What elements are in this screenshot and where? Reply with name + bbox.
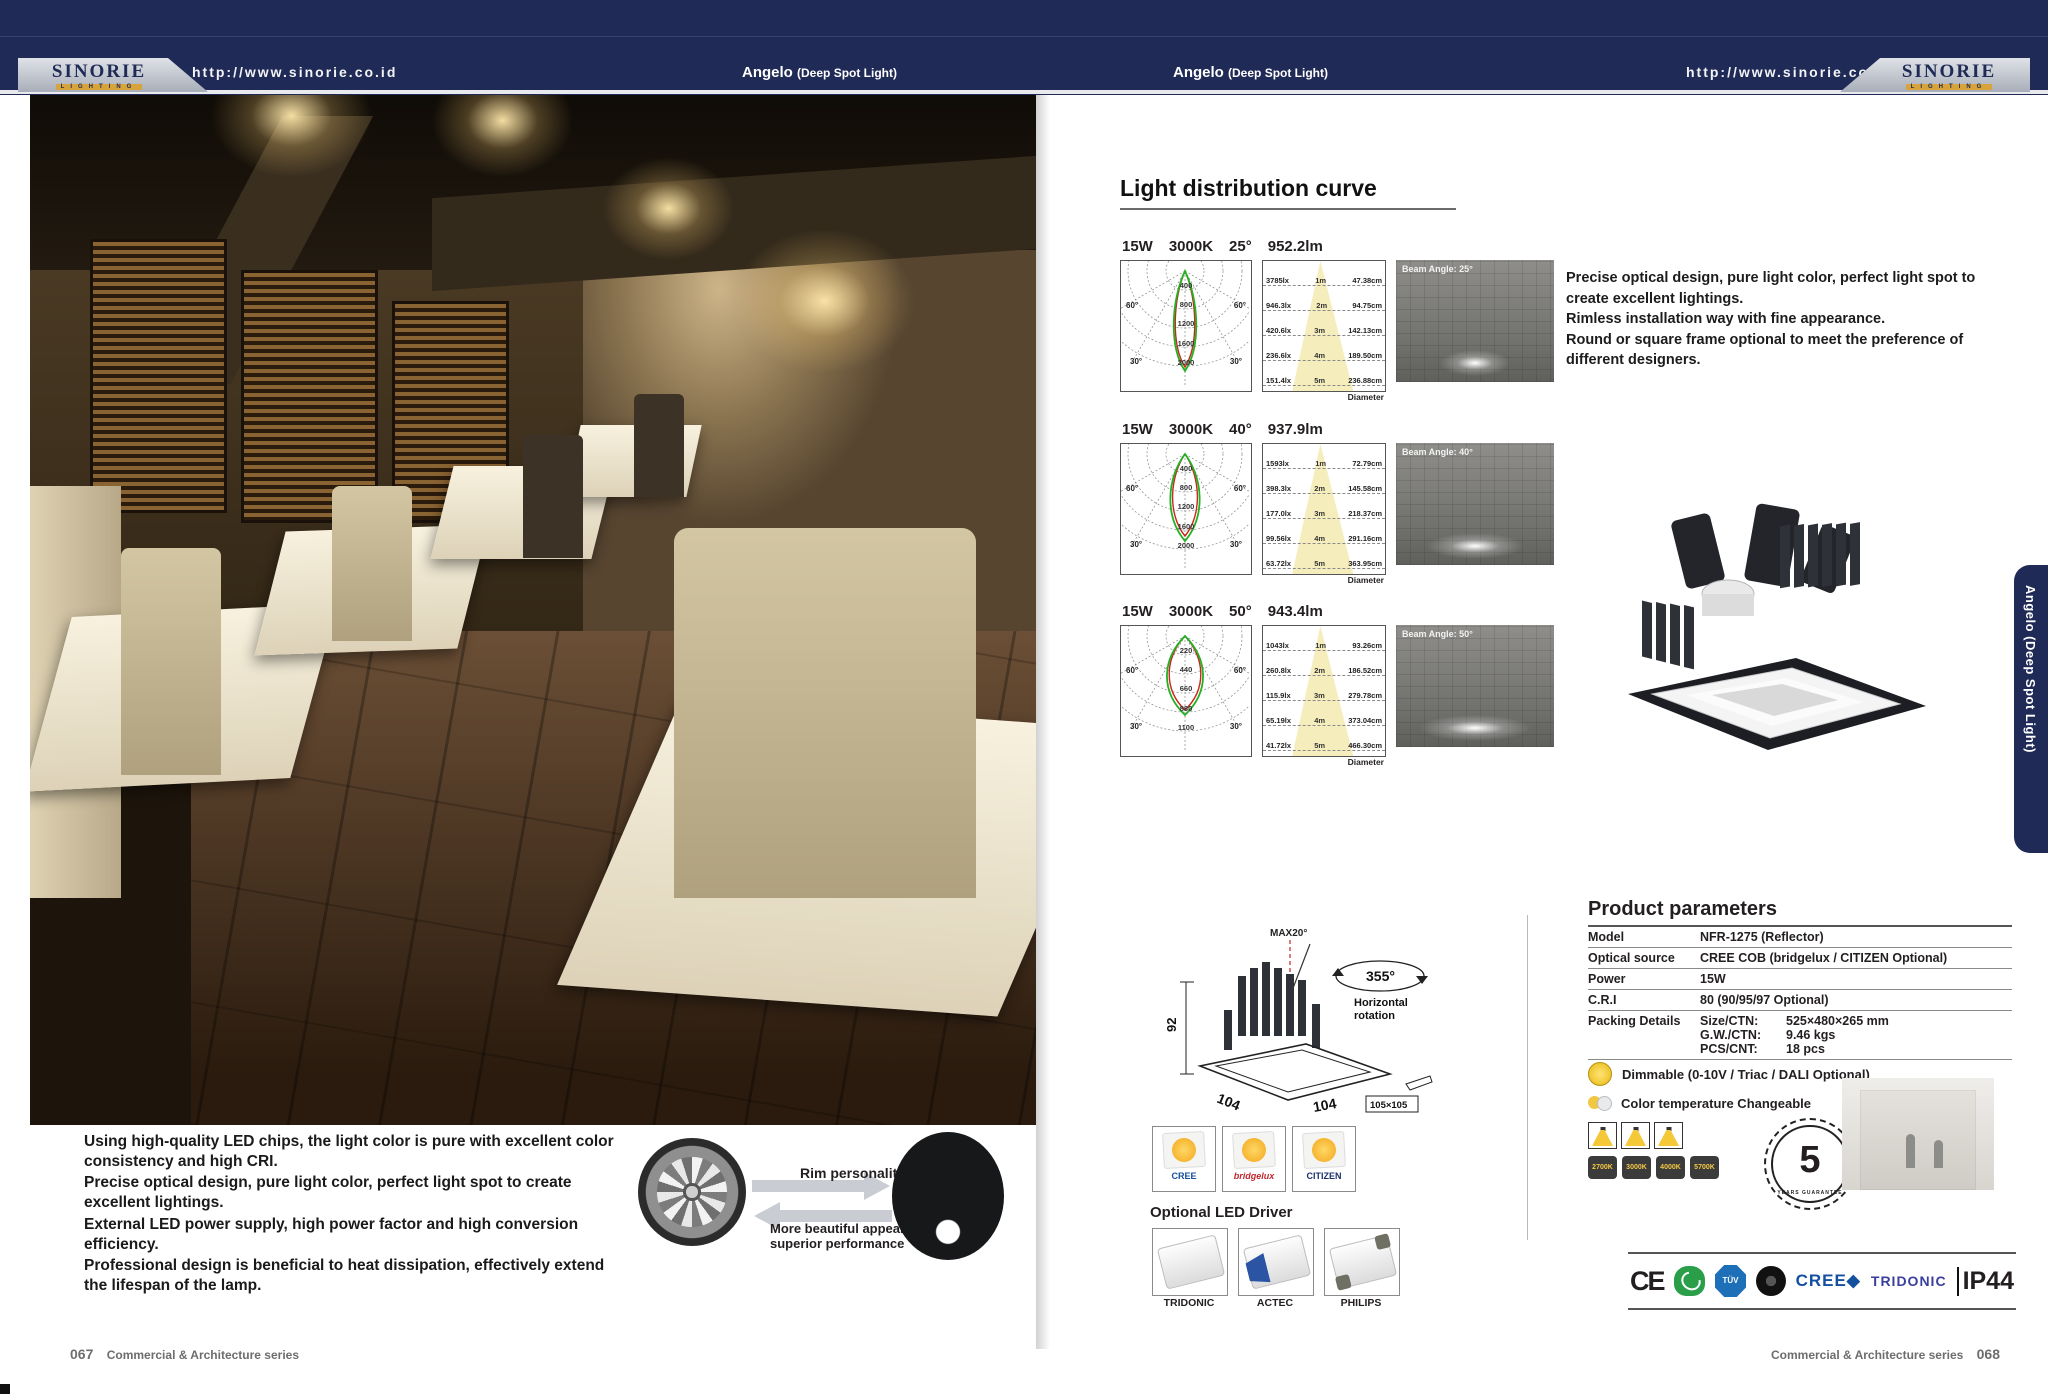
ip44-rating: IP44 <box>1957 1267 2014 1296</box>
polar-chart: 400800120016002000 60° 60° 30° 30° <box>1120 443 1252 575</box>
product-intro: Precise optical design, pure light color… <box>1566 268 1978 371</box>
heatsink-rim-image <box>892 1132 1004 1260</box>
ring-labels: 400800120016002000 <box>1178 464 1195 560</box>
warranty-years: 5 <box>1773 1127 1847 1193</box>
driver-card-philips <box>1324 1228 1400 1296</box>
page-gutter <box>1036 95 1050 1349</box>
photo-armchair-front <box>674 528 976 899</box>
header-bottom-rule <box>0 90 2048 94</box>
brand-name: SINORIE <box>52 61 146 82</box>
site-url-left: http://www.sinorie.co.id <box>192 64 397 80</box>
photo-chair <box>332 486 412 641</box>
side-tab-label: Angelo (Deep Spot Light) <box>2023 585 2038 753</box>
beam-floor-glow <box>1427 533 1523 559</box>
driver-card-actec <box>1238 1228 1314 1296</box>
svg-text:92: 92 <box>1164 1018 1179 1032</box>
cct-chip: 4000K <box>1656 1156 1685 1179</box>
description-line: Precise optical design, pure light color… <box>84 1173 624 1213</box>
svg-text:rotation: rotation <box>1354 1010 1395 1022</box>
header-divider <box>0 36 2048 37</box>
distribution-row-50: 15W3000K50°943.4lm 2204406608801100 60° … <box>1120 603 1580 771</box>
wheel-image <box>638 1138 746 1246</box>
print-mark <box>0 1384 10 1394</box>
cone-table-row: 260.8lx2m186.52cm <box>1263 651 1385 676</box>
tuv-icon: TÜV <box>1715 1265 1746 1297</box>
curves-heading-rule <box>1120 208 1456 210</box>
polar-chart: 2204406608801100 60° 60° 30° 30° <box>1120 625 1252 757</box>
rohs-icon <box>1674 1266 1705 1296</box>
photo-chair-dark <box>523 435 583 559</box>
cone-diagram: 1043lx1m93.26cm260.8lx2m186.52cm115.9lx3… <box>1262 625 1386 757</box>
side-tab-angelo: Angelo (Deep Spot Light) <box>2014 565 2048 853</box>
dimmable-icon <box>1588 1062 1612 1086</box>
restaurant-photo <box>30 95 1036 1125</box>
warranty-stamp-inner: 5 YEARS GUARANTEE <box>1771 1125 1849 1203</box>
footer-right: Commercial & Architecture series 068 <box>1771 1346 2010 1362</box>
cct-changeable-row: Color temperature Changeable <box>1588 1094 1811 1112</box>
cone-table-row: 41.72lx5m466.30cm <box>1263 726 1385 751</box>
svg-text:105×105: 105×105 <box>1370 1100 1408 1111</box>
certifications-row: CE TÜV CREE◆ TRIDONIC IP44 <box>1628 1252 2016 1310</box>
cone-table-row: 63.72lx5m363.95cm <box>1263 544 1385 569</box>
brand-logo-right: SINORIE LIGHTING <box>1874 61 2024 90</box>
photo-blinds <box>241 270 378 523</box>
cone-table-row: 420.6lx3m142.13cm <box>1263 311 1385 336</box>
product-description: Using high-quality LED chips, the light … <box>84 1132 624 1297</box>
cct-chip: 2700K <box>1588 1156 1617 1179</box>
cone-table-row: 115.9lx3m279.78cm <box>1263 676 1385 701</box>
cb-emblem-icon <box>1756 1266 1785 1296</box>
figure-silhouette <box>1934 1140 1943 1168</box>
curves-heading: Light distribution curve <box>1120 175 1377 202</box>
cone-diagram: 1593lx1m72.79cm398.3lx2m145.58cm177.0lx3… <box>1262 443 1386 575</box>
downlight-glow <box>603 157 734 260</box>
led-chip-card-bridgelux: bridgelux <box>1222 1126 1286 1192</box>
packing-line: PCS/CNT: 18 pcs <box>1700 1042 2012 1056</box>
warranty-text: YEARS GUARANTEE <box>1773 1190 1847 1196</box>
beam-angle-icon <box>1621 1122 1650 1149</box>
fixture-image <box>1600 498 1940 778</box>
cone-table-row: 3785lx1m47.38cm <box>1263 261 1385 286</box>
photo-chair-dark <box>634 394 684 497</box>
page-number-right: 068 <box>1977 1346 2000 1362</box>
driver-name: PHILIPS <box>1324 1297 1398 1309</box>
distribution-label: 15W3000K50°943.4lm <box>1122 603 1339 620</box>
packing-line: G.W./CTN: 9.46 kgs <box>1700 1028 2012 1042</box>
cone-table-row: 177.0lx3m218.37cm <box>1263 494 1385 519</box>
brand-subtitle: LIGHTING <box>56 84 142 90</box>
cob-chip-image <box>1302 1131 1346 1169</box>
description-line: Professional design is beneficial to hea… <box>84 1256 624 1296</box>
parameter-row: C.R.I 80 (90/95/97 Optional) <box>1588 990 2012 1011</box>
photo-chair <box>121 548 222 775</box>
ce-mark-icon: CE <box>1630 1266 1664 1297</box>
driver-image <box>1157 1234 1225 1289</box>
beam-floor-glow <box>1440 350 1510 376</box>
cone-table-row: 99.56lx4m291.16cm <box>1263 519 1385 544</box>
ring-labels: 2204406608801100 <box>1178 646 1194 742</box>
figure-silhouette <box>1906 1134 1915 1168</box>
cone-table-row: 236.6lx4m189.50cm <box>1263 336 1385 361</box>
led-chip-card-citizen: CITIZEN <box>1292 1126 1356 1192</box>
brand-logo-left: SINORIE LIGHTING <box>24 61 174 90</box>
intro-line: Round or square frame optional to meet t… <box>1566 330 1978 371</box>
wallwash-glow <box>734 229 915 373</box>
brand-banner-left: SINORIE LIGHTING <box>18 58 208 92</box>
distribution-label: 15W3000K40°937.9lm <box>1122 421 1339 438</box>
dimension-diagram: MAX20° 355° Horizontal rotation 92 104 1… <box>1138 924 1438 1124</box>
footer-left: 067 Commercial & Architecture series <box>60 1346 299 1362</box>
parameter-row: Model NFR-1275 (Reflector) <box>1588 927 2012 948</box>
diameter-caption: Diameter <box>1262 575 1384 585</box>
driver-name: TRIDONIC <box>1152 1297 1226 1309</box>
cone-table-row: 151.4lx5m236.88cm <box>1263 361 1385 386</box>
beam-room-image: Beam Angle: 25° <box>1396 260 1554 382</box>
description-line: External LED power supply, high power fa… <box>84 1215 624 1255</box>
cone-table-row: 65.19lx4m373.04cm <box>1263 701 1385 726</box>
cct-chip: 5700K <box>1690 1156 1719 1179</box>
column-divider <box>1527 915 1528 1240</box>
parameters-heading: Product parameters <box>1588 898 2012 921</box>
header-band: SINORIE LIGHTING http://www.sinorie.co.i… <box>0 0 2048 95</box>
tridonic-logo: TRIDONIC <box>1871 1273 1947 1289</box>
distribution-row-25: 15W3000K25°952.2lm 400800120016002000 60… <box>1120 238 1580 406</box>
room-render-image <box>1842 1078 1994 1190</box>
page-title-right: Angelo (Deep Spot Light) <box>1173 64 1328 81</box>
dimmable-row: Dimmable (0-10V / Triac / DALI Optional) <box>1588 1062 1870 1086</box>
ring-labels: 400800120016002000 <box>1178 281 1195 377</box>
cone-diagram: 3785lx1m47.38cm946.3lx2m94.75cm420.6lx3m… <box>1262 260 1386 392</box>
cree-logo: CREE◆ <box>1796 1271 1861 1291</box>
page-number-left: 067 <box>70 1346 93 1362</box>
led-chip-card-cree: CREE <box>1152 1126 1216 1192</box>
series-label: Commercial & Architecture series <box>1771 1348 1963 1362</box>
drivers-heading: Optional LED Driver <box>1150 1204 1293 1221</box>
cone-table-row: 1593lx1m72.79cm <box>1263 444 1385 469</box>
cct-chip: 3000K <box>1622 1156 1651 1179</box>
description-line: Using high-quality LED chips, the light … <box>84 1132 624 1172</box>
page-title-left: Angelo (Deep Spot Light) <box>742 64 897 81</box>
distribution-row-40: 15W3000K40°937.9lm 400800120016002000 60… <box>1120 421 1580 589</box>
cct-change-icon <box>1588 1094 1612 1112</box>
cone-table-row: 1043lx1m93.26cm <box>1263 626 1385 651</box>
beam-angle-icon <box>1654 1122 1683 1149</box>
beam-floor-glow <box>1419 715 1531 741</box>
cone-table-row: 946.3lx2m94.75cm <box>1263 286 1385 311</box>
parameter-row: Power 15W <box>1588 969 2012 990</box>
svg-text:104: 104 <box>1312 1095 1338 1115</box>
distribution-label: 15W3000K25°952.2lm <box>1122 238 1339 255</box>
packing-line: Size/CTN: 525×480×265 mm <box>1700 1014 2012 1028</box>
cob-chip-image <box>1232 1131 1276 1169</box>
cone-table-row: 398.3lx2m145.58cm <box>1263 469 1385 494</box>
beam-angle-icon <box>1588 1122 1617 1149</box>
beam-room-image: Beam Angle: 40° <box>1396 443 1554 565</box>
svg-text:Horizontal: Horizontal <box>1354 997 1408 1009</box>
cob-chip-image <box>1162 1131 1206 1169</box>
svg-text:104: 104 <box>1215 1090 1243 1114</box>
packing-row: Packing Details Size/CTN: 525×480×265 mm… <box>1588 1011 2012 1060</box>
photo-blinds <box>90 239 227 513</box>
series-label: Commercial & Architecture series <box>107 1348 299 1362</box>
intro-line: Rimless installation way with fine appea… <box>1566 309 1978 330</box>
polar-chart: 400800120016002000 60° 60° 30° 30° <box>1120 260 1252 392</box>
driver-card-tridonic <box>1152 1228 1228 1296</box>
product-parameters: Product parameters Model NFR-1275 (Refle… <box>1588 898 2012 1060</box>
diameter-caption: Diameter <box>1262 757 1384 767</box>
parameter-row: Optical source CREE COB (bridgelux / CIT… <box>1588 948 2012 969</box>
beam-room-image: Beam Angle: 50° <box>1396 625 1554 747</box>
svg-text:355°: 355° <box>1366 968 1395 984</box>
intro-line: Precise optical design, pure light color… <box>1566 268 1978 309</box>
diameter-caption: Diameter <box>1262 392 1384 402</box>
svg-text:MAX20°: MAX20° <box>1270 928 1307 939</box>
driver-image <box>1329 1234 1397 1289</box>
driver-name: ACTEC <box>1238 1297 1312 1309</box>
driver-image <box>1243 1234 1311 1289</box>
